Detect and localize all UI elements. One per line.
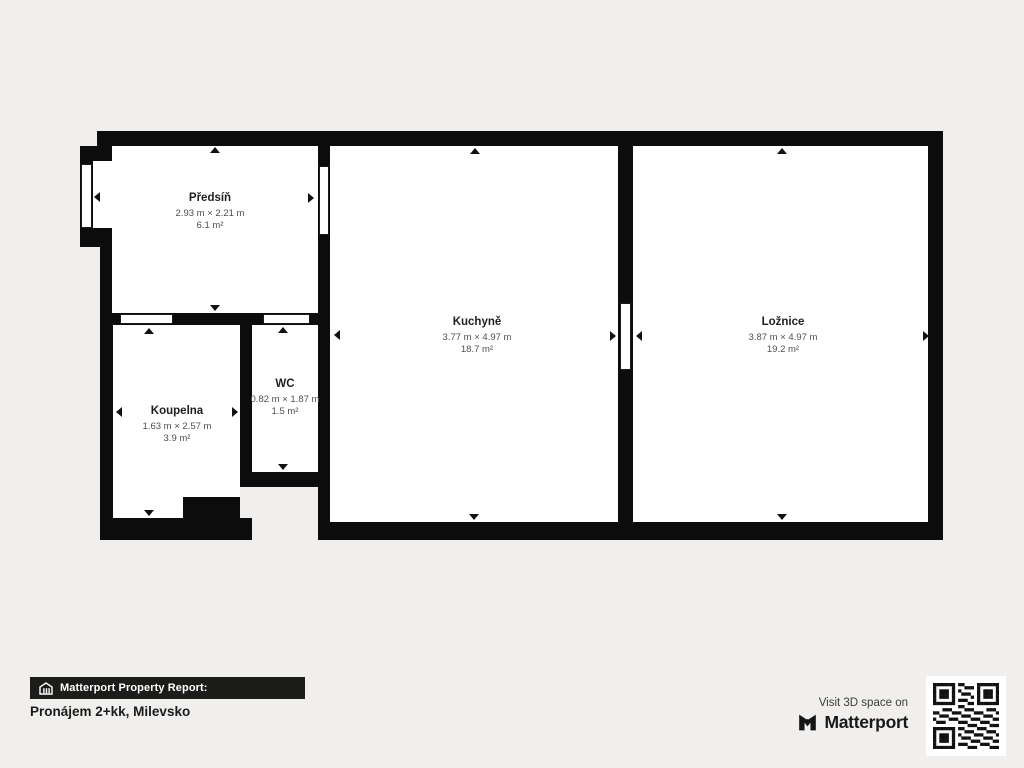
room-area: 18.7 m²: [443, 344, 512, 357]
matterport-wordmark: Matterport: [824, 712, 908, 733]
room-name: WC: [251, 377, 320, 393]
door-opening-kuchyne-loznice: [620, 303, 631, 370]
measure-arrow-right-icon: [232, 407, 238, 417]
matterport-m-icon: [797, 712, 818, 733]
wall-wc-south: [240, 472, 330, 487]
room-dimensions: 2.93 m × 2.21 m: [176, 208, 245, 221]
wall-top: [97, 131, 943, 146]
room-dimensions: 3.87 m × 4.97 m: [749, 332, 818, 345]
measure-arrow-up-icon: [144, 328, 154, 334]
measure-arrow-right-icon: [308, 193, 314, 203]
room-name: Ložnice: [749, 315, 818, 331]
door-opening-predsin-kuchyne: [319, 166, 329, 235]
room-dimensions: 3.77 m × 4.97 m: [443, 332, 512, 345]
floor-plan: Předsíň 2.93 m × 2.21 m 6.1 m² Kuchyně 3…: [0, 0, 1024, 768]
measure-arrow-left-icon: [94, 192, 100, 202]
room-area: 3.9 m²: [143, 433, 212, 446]
report-label: Matterport Property Report:: [60, 682, 208, 694]
room-name: Předsíň: [176, 191, 245, 207]
room-name: Koupelna: [143, 404, 212, 420]
measure-arrow-up-icon: [777, 148, 787, 154]
room-label-kuchyne: Kuchyně 3.77 m × 4.97 m 18.7 m²: [443, 315, 512, 357]
building-icon: [39, 682, 53, 695]
report-header-bar: Matterport Property Report:: [30, 677, 305, 699]
measure-arrow-left-icon: [334, 330, 340, 340]
door-opening-predsin-koupelna: [120, 314, 173, 324]
measure-arrow-down-icon: [144, 510, 154, 516]
measure-arrow-right-icon: [923, 331, 929, 341]
room-label-wc: WC 0.82 m × 1.87 m 1.5 m²: [251, 377, 320, 419]
measure-arrow-left-icon: [636, 331, 642, 341]
room-label-koupelna: Koupelna 1.63 m × 2.57 m 3.9 m²: [143, 404, 212, 446]
measure-arrow-left-icon: [116, 407, 122, 417]
matterport-logo: Matterport: [797, 712, 908, 733]
room-label-loznice: Ložnice 3.87 m × 4.97 m 19.2 m²: [749, 315, 818, 357]
room-dimensions: 0.82 m × 1.87 m: [251, 394, 320, 407]
measure-arrow-down-icon: [469, 514, 479, 520]
room-dimensions: 1.63 m × 2.57 m: [143, 421, 212, 434]
room-name: Kuchyně: [443, 315, 512, 331]
qr-code: [926, 676, 1006, 756]
wall-right: [928, 131, 943, 540]
property-title: Pronájem 2+kk, Milevsko: [30, 704, 190, 719]
measure-arrow-up-icon: [470, 148, 480, 154]
measure-arrow-down-icon: [777, 514, 787, 520]
room-label-predsin: Předsíň 2.93 m × 2.21 m 6.1 m²: [176, 191, 245, 233]
measure-arrow-right-icon: [610, 331, 616, 341]
room-area: 19.2 m²: [749, 344, 818, 357]
door-opening-predsin-wc: [263, 314, 310, 324]
window-opening-left: [81, 164, 92, 228]
room-area: 6.1 m²: [176, 220, 245, 233]
wall-koupelna-corner-block: [183, 497, 240, 522]
room-area: 1.5 m²: [251, 406, 320, 419]
measure-arrow-up-icon: [210, 147, 220, 153]
measure-arrow-up-icon: [278, 327, 288, 333]
visit-3d-text: Visit 3D space on: [819, 697, 908, 709]
measure-arrow-down-icon: [210, 305, 220, 311]
measure-arrow-down-icon: [278, 464, 288, 470]
